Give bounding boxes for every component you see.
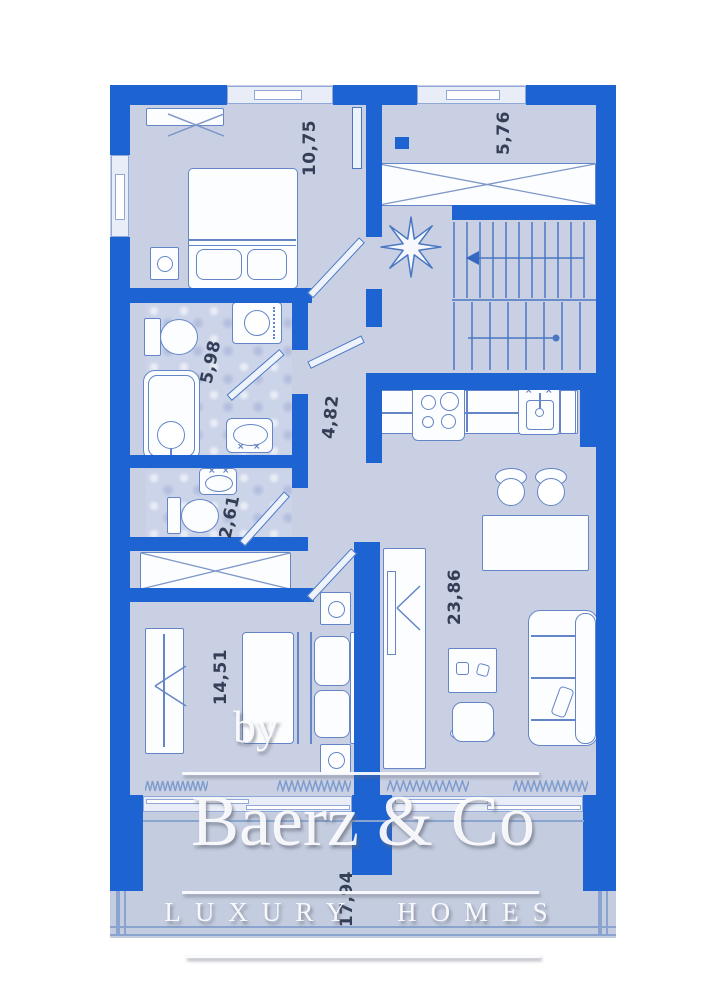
basin-icon [205, 475, 233, 492]
sink-icon: × × [226, 418, 273, 453]
balustrade-post [606, 891, 608, 935]
drain-icon [157, 421, 185, 449]
wall [452, 205, 596, 220]
nightstand-icon [150, 247, 179, 280]
toilet-icon [160, 319, 198, 355]
dining-table-icon [482, 515, 589, 571]
tap-icon: × [208, 467, 216, 476]
cup-icon [456, 662, 469, 675]
floor-plan: × × × × [0, 0, 720, 1000]
cabinet-door-mark-icon [394, 584, 424, 632]
entry-door-icon [352, 107, 362, 169]
stair-arrow-icon [466, 251, 479, 265]
wall [110, 237, 130, 797]
bed-fold-line [189, 245, 296, 246]
burner-icon [422, 416, 434, 428]
sofa-icon [528, 610, 598, 746]
tv-cabinet-icon [383, 548, 426, 769]
area-label-living-kitchen: 23,86 [445, 569, 465, 625]
wardrobe-cross-icon [141, 553, 290, 589]
tap-icon: × [237, 443, 245, 452]
watermark-brand: Baerz & Co [110, 780, 616, 863]
wall [130, 455, 308, 468]
bathtub-icon [143, 370, 200, 462]
throw-pillow-icon [550, 685, 574, 718]
chair-icon [497, 478, 525, 506]
bed-fold-line [189, 239, 296, 241]
watermark-by: by [196, 700, 316, 753]
wall [292, 288, 308, 350]
door-hinge-block [395, 137, 409, 149]
wall [366, 390, 382, 463]
burner-icon [421, 395, 436, 410]
wall [366, 105, 382, 237]
bed-icon [188, 168, 298, 289]
pillow-icon [314, 636, 350, 686]
cup-icon [476, 663, 491, 678]
pillow-icon [314, 690, 350, 738]
wall [333, 85, 417, 105]
area-label-bedroom-1: 10,75 [300, 120, 320, 176]
washer-controls [273, 307, 278, 339]
coat-rack-hanger-icon [168, 110, 224, 140]
stove-icon [412, 384, 465, 441]
balustrade-rail [110, 934, 616, 936]
balustrade-post [598, 891, 602, 935]
tap-icon: × [253, 443, 261, 452]
toilet-tank-icon [144, 318, 161, 356]
burner-icon [441, 414, 456, 429]
wall [292, 394, 308, 488]
pillow-icon [247, 249, 287, 280]
coffee-table-icon [448, 648, 497, 693]
window-icon [417, 86, 526, 104]
balustrade-post [116, 891, 120, 935]
lamp-icon [157, 256, 173, 272]
lamp-icon [328, 601, 345, 618]
toilet-tank-icon [167, 497, 181, 534]
wall [130, 537, 308, 551]
window-pane [446, 90, 500, 100]
window-pane [115, 174, 125, 220]
kitchen-sink-icon: × × [518, 387, 560, 435]
window-icon [227, 86, 333, 104]
area-label-bedroom-2: 14,51 [211, 649, 231, 705]
faucet-icon [535, 408, 544, 417]
wall [596, 85, 616, 797]
chair-icon [537, 478, 565, 506]
watermark-divider [182, 772, 539, 775]
sofa-cushion-line [531, 635, 575, 637]
armchair-icon [452, 702, 494, 742]
sofa-cushion-line [531, 677, 575, 679]
wardrobe-cross-icon [379, 164, 595, 205]
wall [130, 588, 314, 602]
sofa-backrest [575, 613, 596, 744]
window-icon [111, 155, 129, 237]
washing-machine-icon [232, 302, 282, 344]
stairs-icon [452, 220, 596, 373]
nightstand-icon [320, 592, 351, 625]
fridge-icon [560, 390, 576, 434]
wardrobe-door-mark-icon [153, 664, 189, 708]
washer-door-icon [244, 310, 270, 336]
wall [366, 289, 382, 327]
wall [130, 288, 312, 303]
balustrade-post [124, 891, 126, 935]
toilet-icon [181, 499, 219, 533]
counter-divider [466, 391, 468, 432]
lamp-icon [328, 752, 345, 769]
watermark-divider [185, 955, 540, 958]
plant-icon [378, 216, 444, 278]
wall [366, 373, 596, 390]
nightstand-icon [320, 744, 351, 775]
tap-icon: × [222, 467, 230, 476]
faucet-line [539, 393, 541, 409]
wall [580, 382, 598, 447]
wall [110, 85, 130, 155]
watermark-divider [182, 891, 539, 894]
sink-icon: × × [199, 468, 237, 495]
wall [354, 542, 380, 795]
burner-icon [440, 392, 459, 411]
pillow-icon [196, 249, 242, 280]
window-pane [254, 90, 302, 100]
area-label-entry-hall: 5,76 [494, 111, 514, 155]
sofa-cushion-line [531, 719, 575, 721]
watermark-tagline: LUXURY HOMES [130, 897, 596, 928]
